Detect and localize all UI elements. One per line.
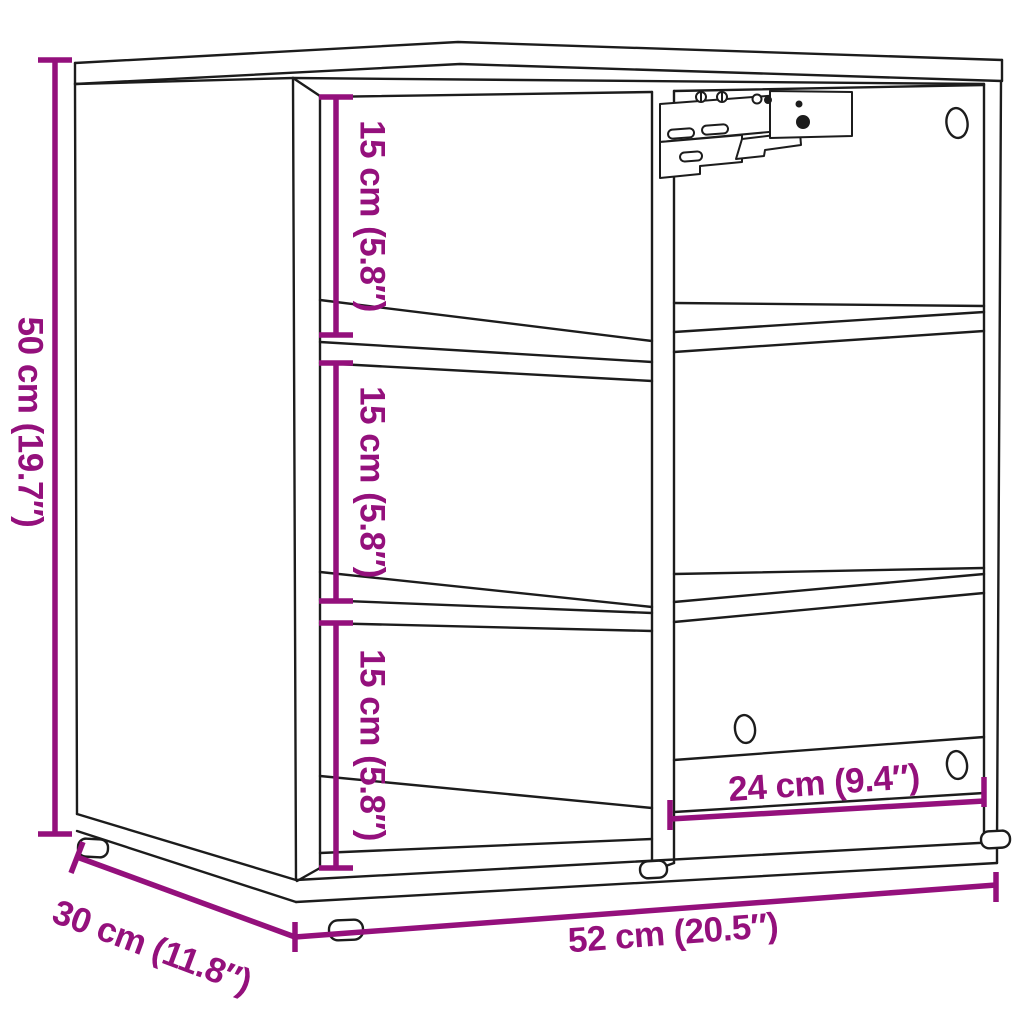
bracket-box [770,91,852,138]
shelf-back-edge [674,568,984,574]
top-left-inner-corner [293,78,320,96]
dimension-label-compartment-middle: 15 cm (5.8″) [355,386,390,578]
floor-back-edge [674,737,984,760]
bracket-slot [702,124,729,135]
top-panel-back-edge [75,42,1002,63]
dimension-line-compartment-middle [319,363,353,601]
cable-hole-icon [945,107,970,140]
cable-holes [733,107,969,781]
screw-icon [797,116,809,128]
front-top-edge [293,78,984,84]
screw-icon [765,97,771,103]
screw-icon [753,95,762,104]
cable-hole-icon [733,714,757,745]
dimension-label-compartment-bottom: 15 cm (5.8″) [355,649,390,841]
shelf-front-top-edge [674,312,984,332]
floor-front-edge [320,839,652,853]
ceiling-left-column [320,92,652,97]
shelf-front-bottom-edge [674,331,984,352]
dimension-lines [38,60,996,952]
feet [78,830,1011,940]
right-outer-edge [997,81,1001,842]
dimension-line-compartment-bottom [319,623,353,868]
ceiling-right-column [674,85,984,91]
dimension-label-height: 50 cm (19.7″) [13,317,48,528]
wall-mount-bracket [660,91,852,178]
shelf-back-edge [674,303,984,306]
dimension-label-compartment-top: 15 cm (5.8″) [355,120,390,312]
shelf-front-bottom-edge [320,363,652,381]
screw-hole-icon [797,102,802,107]
cabinet-line-drawing [0,0,1024,1024]
shelf-front-top-edge [320,342,652,362]
foot [981,830,1011,848]
shelf-front-bottom-edge [320,623,652,631]
dimension-diagram: 50 cm (19.7″) 15 cm (5.8″) 15 cm (5.8″) … [0,0,1024,1024]
left-outer-edge [75,84,77,814]
bracket-slot [680,151,703,162]
bracket-slot [668,128,695,139]
front-left-edge [293,78,296,880]
cable-hole-icon [945,750,969,781]
foot [640,860,668,878]
